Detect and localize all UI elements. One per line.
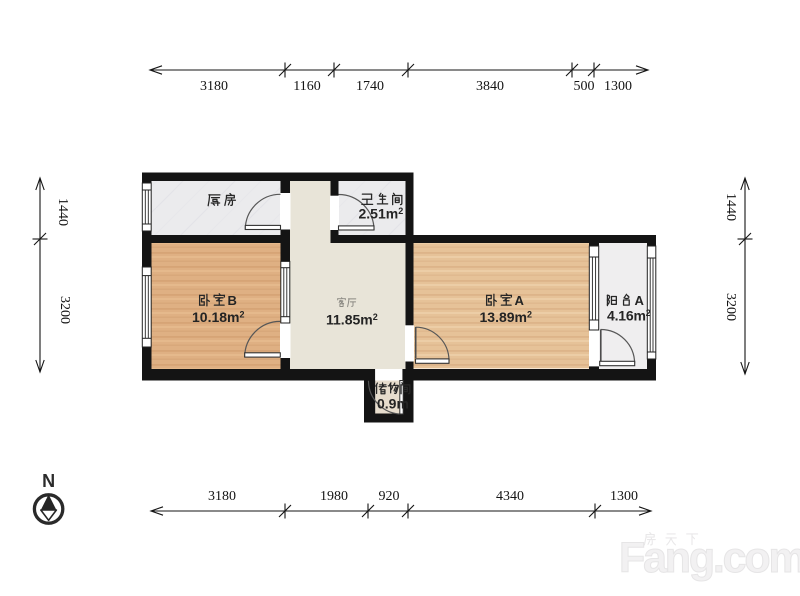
svg-text:1440: 1440 [723,193,738,221]
svg-text:1300: 1300 [610,489,638,504]
svg-text:11.85m2: 11.85m2 [326,312,378,328]
svg-text:N: N [42,471,55,491]
svg-text:13.89m2: 13.89m2 [480,309,533,325]
svg-text:Fang.com: Fang.com [619,534,800,582]
svg-text:1740: 1740 [356,79,384,94]
svg-text:3200: 3200 [723,293,738,321]
svg-text:3200: 3200 [57,296,72,324]
svg-text:1300: 1300 [604,79,632,94]
svg-text:1980: 1980 [320,489,348,504]
svg-text:B: B [228,293,237,308]
svg-text:920: 920 [379,489,400,504]
svg-text:A: A [635,293,645,308]
svg-text:1440: 1440 [55,198,70,226]
svg-text:1160: 1160 [293,79,320,94]
svg-text:A: A [515,293,525,308]
svg-text:4.16m2: 4.16m2 [607,308,651,324]
svg-text:4340: 4340 [496,489,524,504]
svg-text:10.18m2: 10.18m2 [192,309,245,325]
svg-text:2.51m2: 2.51m2 [359,206,404,222]
svg-text:0.9m: 0.9m [377,396,409,412]
svg-text:3180: 3180 [200,79,228,94]
svg-text:3180: 3180 [208,489,236,504]
svg-text:3840: 3840 [476,79,504,94]
svg-text:500: 500 [574,79,595,94]
